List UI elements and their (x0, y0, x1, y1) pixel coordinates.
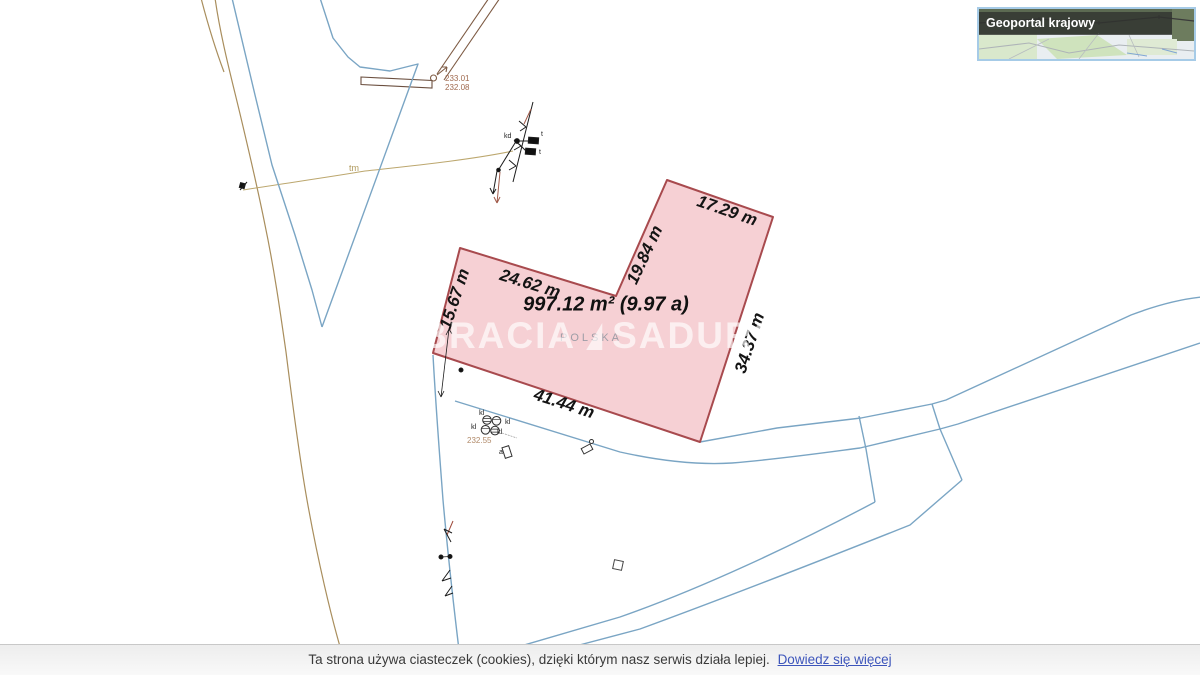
spot-height-label: 232.55 (467, 436, 491, 445)
place-name-label: POLSKA (560, 332, 622, 344)
cookie-message: Ta strona używa ciasteczek (cookies), dz… (308, 652, 769, 667)
minimap-title-bar: Geoportal krajowy (979, 12, 1172, 35)
manhole-label: kl (497, 427, 502, 436)
dirt-road-lines (201, 0, 348, 675)
geoportal-minimap[interactable]: Geoportal krajowy (977, 7, 1196, 61)
upper-road (361, 0, 500, 88)
tm-line-label: tm (349, 163, 359, 173)
cookie-more-link[interactable]: Dowiedz się więcej (778, 652, 892, 667)
annex-label: a (499, 449, 503, 456)
transformer-label: t (541, 131, 543, 138)
minimap-title: Geoportal krajowy (986, 16, 1095, 30)
geoportal-page: 233.01 232.08 tm 232.55 kl kl kl kl t t … (0, 0, 1200, 675)
cookie-bar: Ta strona używa ciasteczek (cookies), dz… (0, 644, 1200, 675)
manhole-label: kl (505, 417, 510, 426)
manhole-label: kl (471, 422, 476, 431)
kd-label: kd (504, 133, 511, 140)
transformer-label: t (539, 149, 541, 156)
parcel-area-label: 997.12 m² (9.97 a) (523, 294, 689, 317)
tm-utility-line (243, 151, 513, 190)
manhole-label: kl (479, 408, 484, 417)
spot-height-label: 233.01 (445, 74, 469, 83)
spot-height-label: 232.08 (445, 83, 469, 92)
